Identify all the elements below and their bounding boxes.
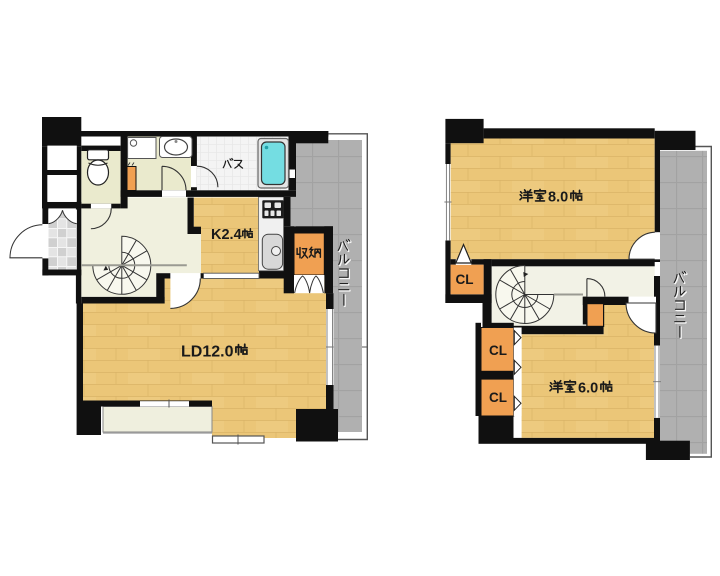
svg-text:CL: CL (489, 343, 507, 358)
svg-text:8.0: 8.0 (548, 190, 568, 206)
svg-text:K2.4: K2.4 (211, 227, 242, 243)
svg-text:6.0: 6.0 (578, 381, 598, 397)
svg-text:LD12.0: LD12.0 (181, 344, 234, 361)
svg-text:CL: CL (489, 390, 507, 405)
svg-text:CL: CL (456, 272, 474, 287)
